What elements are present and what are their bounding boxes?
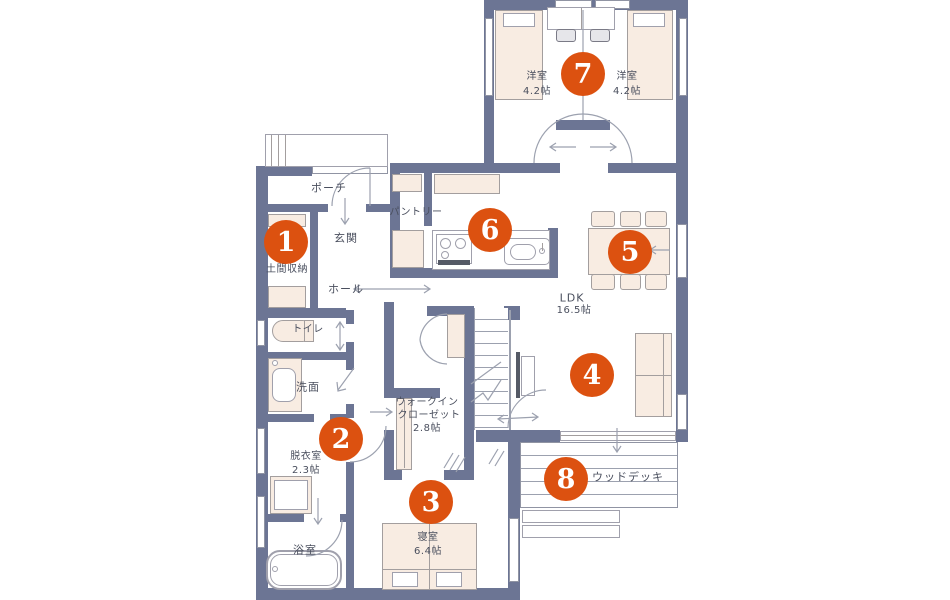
tv	[516, 352, 520, 398]
arrow	[341, 198, 349, 224]
window	[677, 224, 687, 278]
porch-overhang	[265, 134, 388, 167]
closet-bifold-arc	[420, 314, 447, 340]
wall	[314, 308, 346, 318]
wall-hatch	[489, 449, 504, 466]
arrow	[336, 322, 344, 350]
faucet-spout	[542, 243, 543, 251]
label-dressing-size: 2.3帖	[292, 466, 320, 476]
door-swings-and-arrows	[0, 0, 950, 600]
window	[257, 320, 265, 346]
arrow	[550, 143, 576, 151]
dining-chair	[591, 274, 615, 290]
dining-chair	[620, 211, 641, 227]
bath-faucet	[272, 566, 278, 572]
wall	[310, 212, 318, 308]
wall	[476, 430, 560, 442]
desk-chair	[590, 29, 610, 42]
dining-chair	[645, 211, 667, 227]
stove-burner	[455, 238, 466, 249]
bathtub-inner	[270, 554, 338, 586]
window	[485, 18, 493, 96]
wall	[484, 163, 560, 173]
label-wood-deck: ウッドデッキ	[592, 472, 664, 483]
marker-8-number: 8	[557, 464, 576, 495]
marker-2: 2	[319, 417, 363, 461]
label-ldk-size: 16.5帖	[557, 306, 592, 316]
marker-7-number: 7	[574, 59, 593, 90]
stairs	[474, 308, 508, 430]
pillow	[392, 572, 418, 587]
wall	[256, 308, 314, 318]
label-toilet: トイレ	[292, 325, 324, 335]
wall	[556, 120, 610, 130]
window	[509, 518, 519, 582]
marker-3-number: 3	[422, 487, 441, 518]
marker-2-number: 2	[332, 424, 351, 455]
pillow	[503, 13, 535, 27]
label-pantry: パントリー	[390, 208, 443, 218]
marker-1: 1	[264, 220, 308, 264]
pantry-shelf	[392, 230, 424, 268]
deck-sliding-door	[560, 431, 676, 441]
label-bedroom-size: 6.4帖	[414, 547, 442, 557]
wall	[384, 302, 394, 398]
label-washroom: 洗面	[296, 382, 320, 393]
wall	[464, 306, 474, 480]
porch-line	[278, 135, 279, 166]
arrow	[354, 285, 430, 293]
marker-8: 8	[544, 457, 588, 501]
label-entrance: 玄関	[334, 233, 358, 244]
wall	[366, 204, 390, 212]
washbasin-faucet	[272, 360, 278, 366]
wall	[340, 514, 346, 522]
washing-machine-inner	[274, 480, 308, 510]
entrance-threshold	[312, 166, 388, 174]
window	[257, 428, 265, 474]
pillow	[436, 572, 462, 587]
wall	[346, 404, 354, 418]
bed-foot-line	[383, 569, 476, 570]
label-dressing: 脱衣室	[290, 452, 322, 462]
wall	[256, 414, 314, 422]
doma-shelf	[268, 286, 306, 308]
cupboard	[434, 174, 500, 194]
pillow	[633, 13, 665, 27]
wall	[256, 166, 312, 176]
label-doma-storage: 土間収納	[266, 265, 308, 275]
closet-shelf	[447, 314, 465, 358]
sofa-cushion-line	[636, 375, 672, 376]
porch-line	[271, 135, 272, 166]
wall	[346, 514, 354, 600]
marker-4-number: 4	[583, 360, 602, 391]
wall	[346, 310, 354, 324]
marker-6-number: 6	[481, 215, 500, 246]
deck-step	[522, 510, 620, 523]
wall	[346, 462, 354, 514]
arrow	[370, 408, 392, 416]
marker-6: 6	[468, 208, 512, 252]
cupboard	[392, 174, 422, 192]
wall	[444, 470, 474, 480]
label-ldk: LDK	[560, 293, 585, 304]
tv-board	[521, 356, 535, 396]
wall	[390, 163, 490, 173]
label-western-left-size: 4.2帖	[523, 87, 551, 97]
marker-1-number: 1	[277, 227, 296, 258]
marker-5: 5	[608, 230, 652, 274]
wall	[608, 163, 676, 173]
closet-bifold-arc	[420, 340, 447, 364]
label-wic-1: ウォークイン	[396, 398, 459, 408]
label-western-right: 洋室	[617, 72, 638, 82]
window	[257, 496, 265, 548]
wall	[346, 342, 354, 370]
marker-7: 7	[561, 52, 605, 96]
deck-sliding-door-rail	[560, 435, 676, 436]
stove-grill	[438, 260, 470, 265]
dining-chair	[645, 274, 667, 290]
arrow	[337, 368, 354, 391]
floorplan: ポーチ パントリー 玄関 土間収納 ホール トイレ 洗面 脱衣室 2.3帖 浴室…	[0, 0, 950, 600]
washbasin-bowl	[272, 368, 296, 402]
wall	[268, 204, 328, 212]
dining-chair	[591, 211, 615, 227]
marker-5-number: 5	[621, 237, 640, 268]
wall	[384, 470, 402, 480]
label-hall: ホール	[328, 284, 364, 295]
marker-3: 3	[409, 480, 453, 524]
arrow	[590, 143, 616, 151]
marker-4: 4	[570, 353, 614, 397]
stair-railing	[509, 310, 511, 430]
arrow	[314, 498, 322, 524]
label-wic-2: クローゼット	[398, 411, 461, 421]
sink-basin	[510, 244, 536, 260]
dining-chair	[620, 274, 641, 290]
desk-divider	[581, 8, 582, 29]
window	[679, 18, 687, 96]
label-bath: 浴室	[293, 545, 317, 556]
label-western-left: 洋室	[527, 72, 548, 82]
label-porch: ポーチ	[311, 183, 347, 194]
desk-chair	[556, 29, 576, 42]
label-western-right-size: 4.2帖	[613, 87, 641, 97]
deck-step	[522, 525, 620, 538]
window	[677, 394, 687, 430]
label-bedroom: 寝室	[418, 533, 439, 543]
porch-line	[285, 135, 286, 166]
stove-burner	[440, 238, 451, 249]
stove-burner	[441, 251, 449, 259]
label-wic-size: 2.8帖	[413, 424, 441, 434]
